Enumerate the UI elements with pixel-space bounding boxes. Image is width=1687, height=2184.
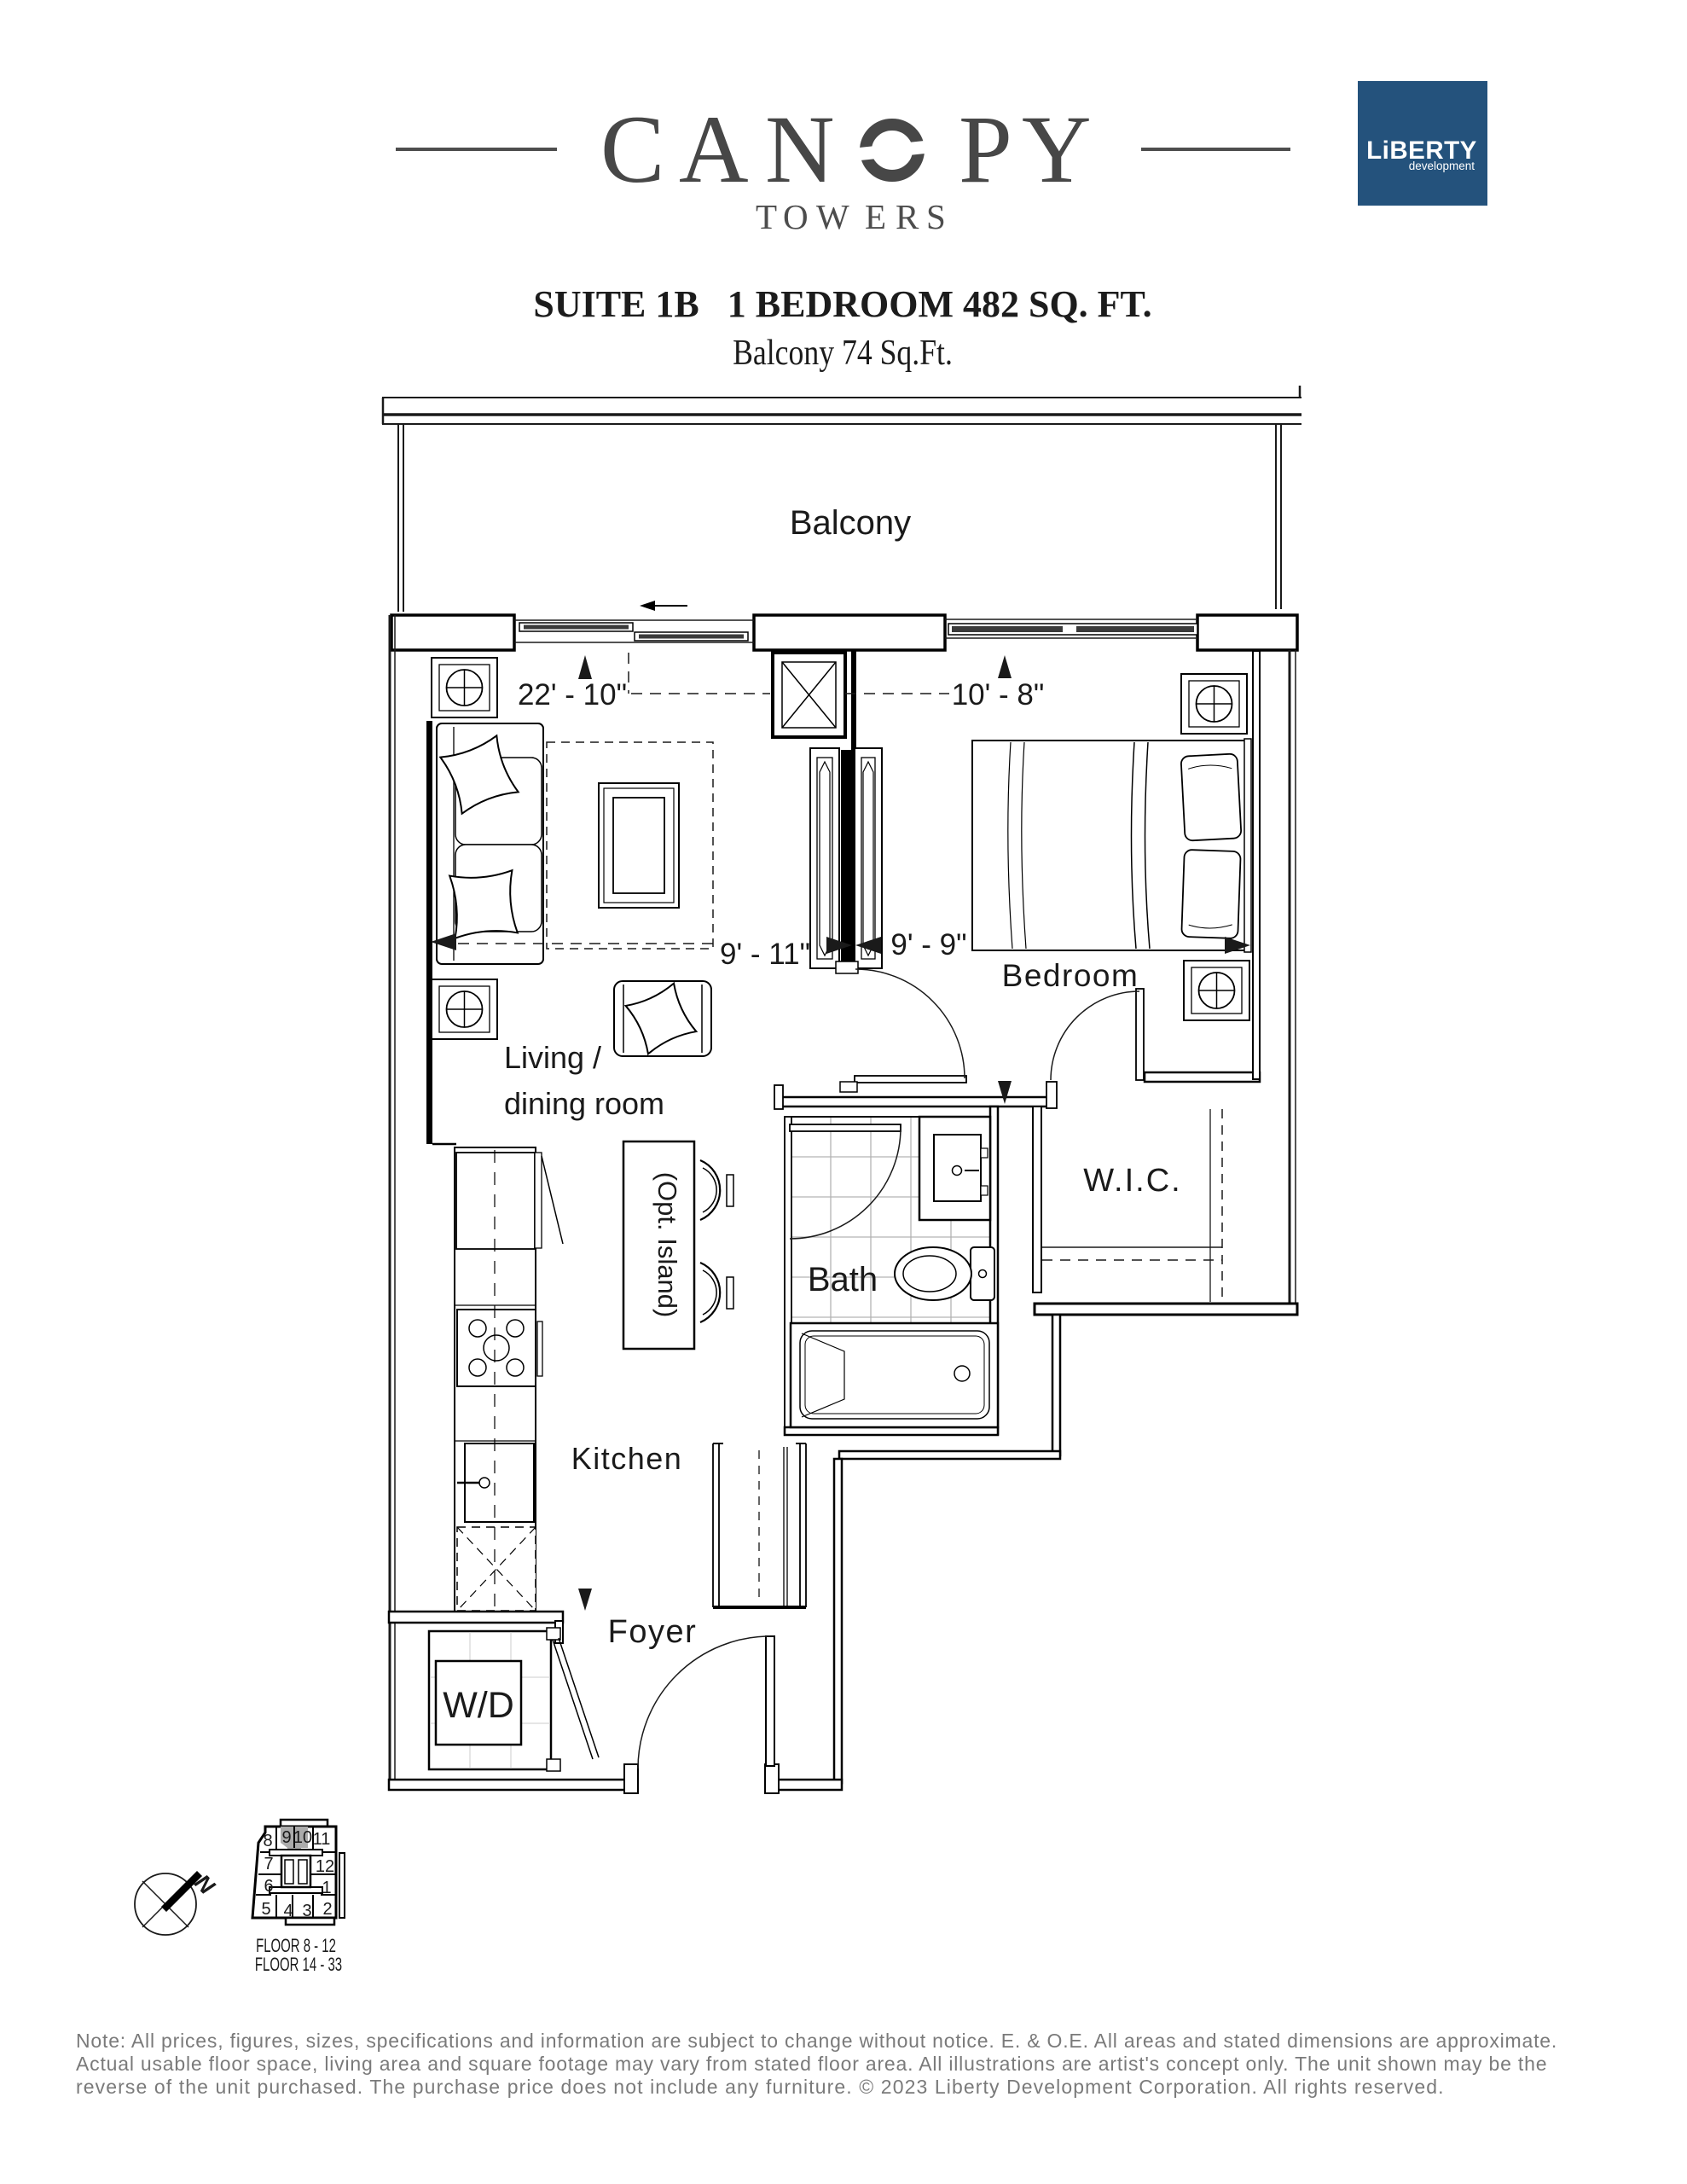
svg-text:12: 12 [316, 1857, 334, 1876]
svg-text:Living /: Living / [504, 1040, 601, 1075]
svg-text:9' - 11": 9' - 11" [720, 938, 810, 971]
svg-text:Balcony: Balcony [790, 504, 911, 542]
svg-text:W/D: W/D [443, 1685, 514, 1726]
svg-text:development: development [1409, 160, 1475, 172]
svg-text:Bedroom: Bedroom [1002, 958, 1139, 993]
svg-text:W.I.C.: W.I.C. [1083, 1163, 1181, 1199]
svg-text:Kitchen: Kitchen [571, 1441, 683, 1476]
svg-text:(Opt. Island): (Opt. Island) [652, 1172, 682, 1318]
svg-text:Balcony 74 Sq.Ft.: Balcony 74 Sq.Ft. [733, 333, 953, 372]
svg-text:SUITE 1B 1 BEDROOM 482 SQ. F: SUITE 1B 1 BEDROOM 482 SQ. FT. [533, 283, 1151, 325]
svg-text:CAN: CAN [600, 96, 835, 203]
svg-text:3: 3 [302, 1902, 311, 1920]
svg-text:Foyer: Foyer [608, 1614, 698, 1650]
svg-text:PY: PY [959, 96, 1092, 203]
svg-text:6: 6 [264, 1877, 273, 1896]
svg-text:9: 9 [281, 1828, 291, 1847]
svg-text:dining room: dining room [504, 1086, 664, 1121]
svg-text:FLOOR 14 - 33: FLOOR 14 - 33 [255, 1954, 342, 1975]
svg-text:1: 1 [322, 1879, 331, 1897]
svg-text:4: 4 [283, 1902, 293, 1920]
svg-text:10: 10 [293, 1828, 312, 1847]
svg-text:Actual usable floor space, liv: Actual usable floor space, living area a… [76, 2053, 1547, 2075]
svg-text:22' - 10": 22' - 10" [518, 678, 627, 712]
svg-text:8: 8 [263, 1832, 272, 1850]
svg-text:2: 2 [322, 1900, 332, 1919]
svg-text:7: 7 [264, 1855, 273, 1873]
svg-text:9' - 9": 9' - 9" [890, 928, 966, 961]
svg-text:Bath: Bath [808, 1261, 878, 1298]
svg-text:11: 11 [313, 1830, 331, 1849]
svg-text:10' - 8": 10' - 8" [952, 678, 1045, 712]
svg-text:reverse of the unit purchased.: reverse of the unit purchased. The purch… [76, 2076, 1445, 2098]
svg-text:5: 5 [261, 1900, 270, 1919]
svg-text:Note: All prices, figures, si: Note: All prices, figures, sizes, specif… [76, 2030, 1557, 2052]
svg-text:FLOOR 8 - 12: FLOOR 8 - 12 [256, 1935, 336, 1956]
